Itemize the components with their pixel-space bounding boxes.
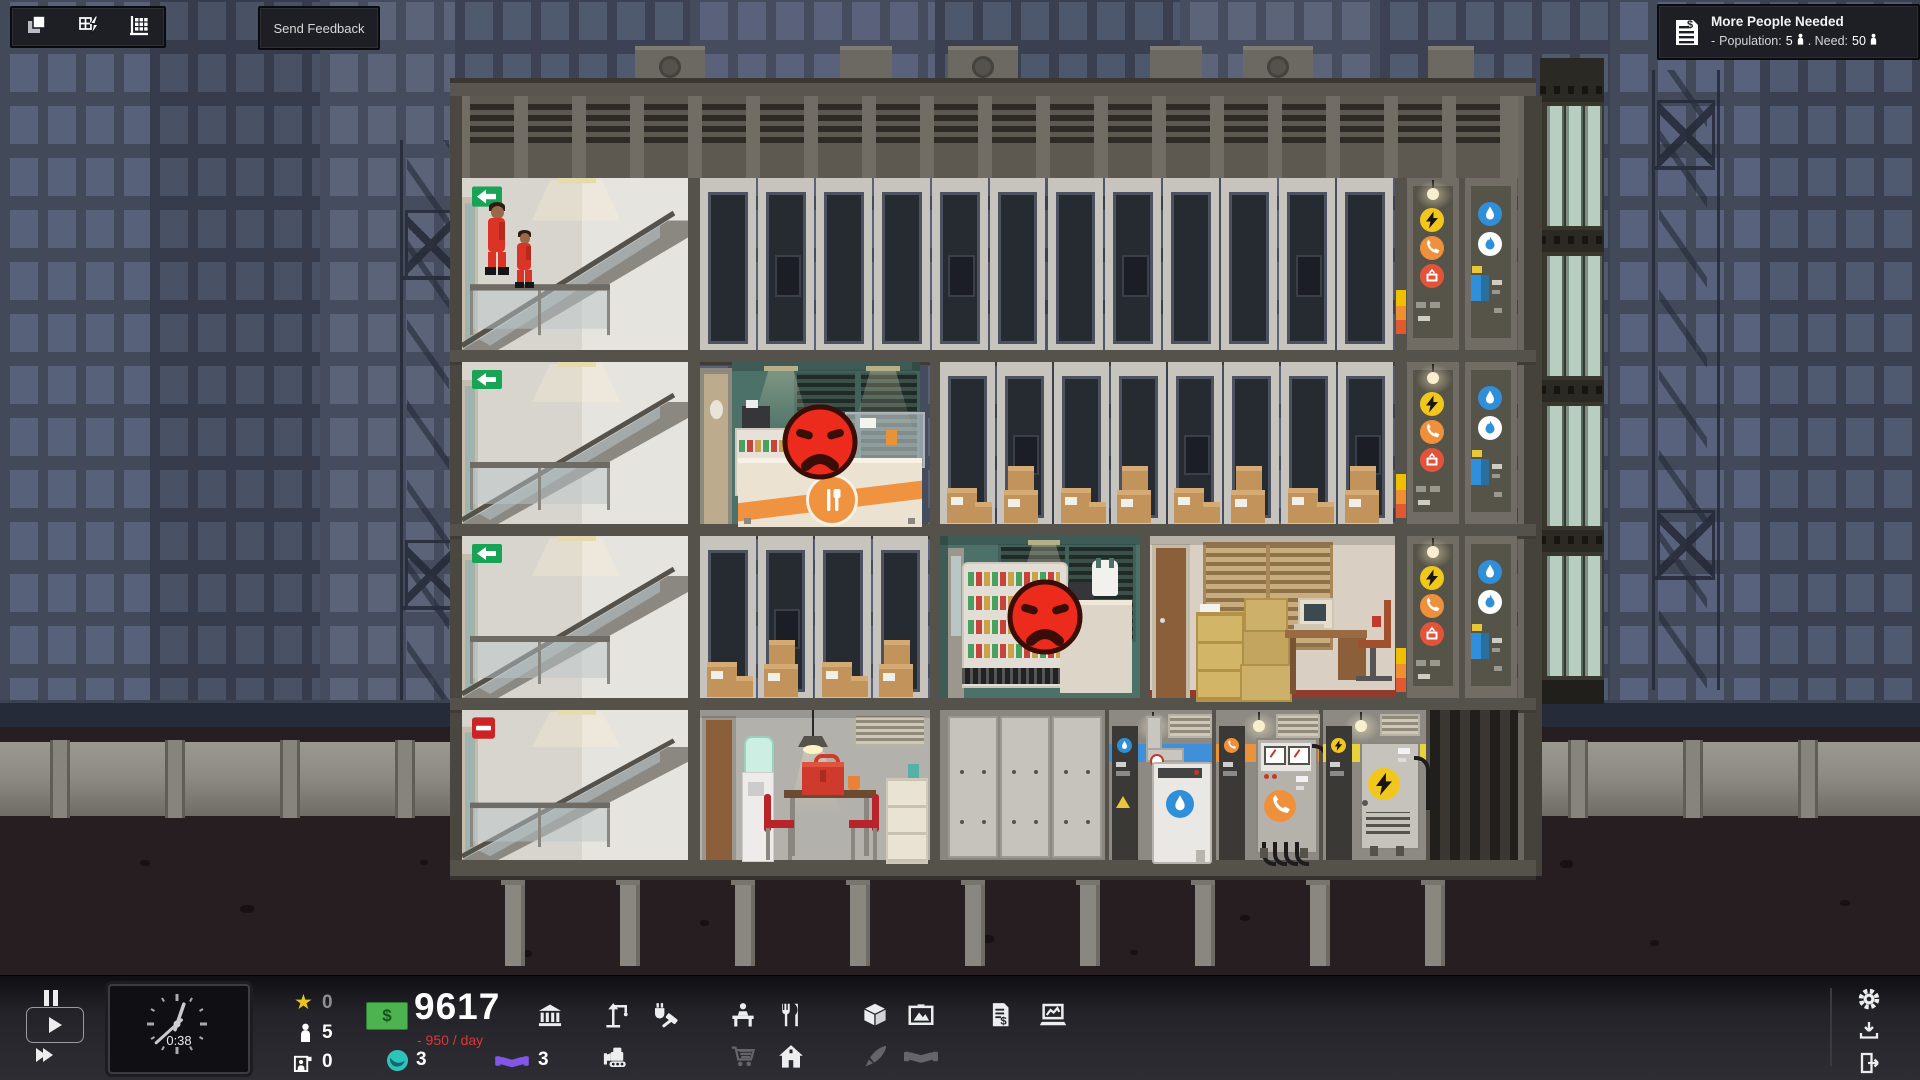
- rock: [420, 860, 428, 865]
- rock: [1130, 950, 1138, 955]
- rock: [1650, 940, 1659, 946]
- fire-escape-ladder: [407, 140, 449, 720]
- storage-box: [947, 488, 977, 523]
- foundation-pillar: [505, 885, 525, 966]
- storage-box: [1350, 466, 1376, 493]
- panel-bolt: [960, 820, 964, 824]
- panel-bolt: [982, 770, 986, 774]
- parapet-lip: [450, 78, 1536, 83]
- ceiling-shadow: [700, 710, 930, 718]
- overlay-toolbar: [10, 6, 166, 48]
- tower-glass-section: [1540, 402, 1604, 530]
- file-cabinet: [1196, 612, 1244, 702]
- roof-vent-column: [1166, 96, 1210, 178]
- contracts-button[interactable]: $: [978, 995, 1024, 1035]
- door-handle: [1160, 618, 1165, 623]
- pencil-cup: [908, 764, 919, 778]
- storage-box: [1122, 466, 1148, 493]
- pipe-coupling: [1798, 740, 1818, 818]
- tower-window-strip: [1566, 406, 1583, 526]
- bulldozer-button[interactable]: [594, 1037, 640, 1077]
- tower-window-strip: [1547, 256, 1564, 376]
- background-building: [150, 0, 320, 730]
- shelf-products: [739, 440, 785, 452]
- panel-bolt: [1034, 820, 1038, 824]
- roof-vent-column: [818, 96, 862, 178]
- send-feedback-button[interactable]: Send Feedback: [258, 6, 380, 50]
- unit-door-opening: [1345, 192, 1385, 344]
- tower-roof: [1540, 58, 1604, 80]
- stripe-marker: [1396, 490, 1406, 504]
- foundation-pillar: [620, 885, 640, 966]
- tower-window-strip: [1566, 256, 1583, 376]
- utility-mini-icon: [1224, 738, 1239, 753]
- ceiling-shadow: [1150, 536, 1395, 545]
- lamp-bulb: [1427, 372, 1439, 384]
- influence-icon: [386, 1049, 409, 1077]
- foundation-pillar: [965, 885, 985, 966]
- meter-box: [1471, 459, 1481, 485]
- deli-door-window: [710, 400, 723, 419]
- bank-icon[interactable]: [536, 1001, 564, 1034]
- label: [1492, 280, 1502, 285]
- storage-box: [1174, 488, 1204, 523]
- phone-icon: [1420, 236, 1444, 260]
- rock: [1560, 860, 1573, 868]
- label: [1398, 748, 1410, 754]
- tower-glass-section: [1540, 552, 1604, 680]
- building-left-wall: [450, 96, 462, 876]
- person-icon: [1797, 33, 1804, 48]
- person-icon: [1870, 33, 1877, 48]
- roof-vent-column: [1108, 96, 1152, 178]
- worker-boot: [525, 282, 534, 288]
- tower-window-strip: [1585, 256, 1602, 376]
- worker-arm: [526, 246, 531, 260]
- electric-bolt-icon: [1420, 392, 1444, 416]
- storage-box: [1288, 488, 1318, 523]
- label: [1418, 500, 1430, 505]
- chair-leg: [788, 828, 792, 860]
- riser-handle: [1494, 666, 1502, 671]
- storage-box: [975, 502, 992, 523]
- storage-box: [769, 640, 795, 667]
- stripe-marker: [1396, 664, 1406, 678]
- chair-post: [1370, 648, 1376, 676]
- game-clock: 0:38: [108, 984, 250, 1074]
- favors-handshake-icon: [494, 1051, 530, 1077]
- breaker-vents: [1366, 812, 1410, 834]
- roof-vent-column: [1224, 96, 1268, 178]
- shopping-cart-button[interactable]: [720, 1037, 766, 1077]
- stripe-marker: [1396, 648, 1406, 664]
- roof-vent-column: [992, 96, 1036, 178]
- panel-bolt: [1086, 820, 1090, 824]
- money-icon: $: [366, 1002, 408, 1030]
- roof-vent-column: [1398, 96, 1442, 178]
- machine-foot: [1260, 848, 1268, 858]
- utilities-tools-button[interactable]: [642, 995, 688, 1035]
- lamp-bulb: [1427, 546, 1439, 558]
- storage-box: [884, 640, 910, 667]
- empty-unit[interactable]: [700, 178, 756, 350]
- storage-box: [1231, 490, 1265, 523]
- cable-tv-icon: [1420, 622, 1444, 646]
- panel-bolt: [1086, 770, 1090, 774]
- food-service-button[interactable]: [768, 995, 814, 1035]
- unit-door-opening: [1171, 192, 1211, 344]
- roof-vent-column: [644, 96, 688, 178]
- unit-under-construction[interactable]: [1168, 362, 1223, 524]
- cable: [1414, 756, 1430, 810]
- street-right: [1518, 700, 1920, 730]
- cash-register: [742, 406, 770, 428]
- meter-box: [1481, 275, 1489, 301]
- roof-vent-column: [934, 96, 978, 178]
- ac-grille: [854, 714, 926, 746]
- label: [1492, 638, 1502, 643]
- empty-unit[interactable]: [874, 178, 930, 350]
- riser-handle: [1430, 302, 1440, 308]
- roof-vent-column: [528, 96, 572, 178]
- hud-divider: [1830, 988, 1832, 1066]
- staff-icon: [293, 1053, 312, 1077]
- empty-unit[interactable]: [1279, 178, 1335, 350]
- tower-window-strip: [1547, 106, 1564, 226]
- interior-wall: [1140, 536, 1150, 698]
- counter-leg: [744, 518, 751, 524]
- empty-unit[interactable]: [1221, 178, 1277, 350]
- roof-vent-column: [1050, 96, 1094, 178]
- water-bottle: [744, 736, 774, 776]
- plastic-bag: [1092, 560, 1118, 596]
- ceiling-shadow: [732, 362, 920, 371]
- chair-seat: [849, 820, 879, 828]
- storage-box: [822, 662, 852, 697]
- electric-bolt-icon: [1420, 566, 1444, 590]
- storage-box: [1089, 502, 1106, 523]
- unit-under-construction[interactable]: [873, 536, 929, 698]
- empty-unit[interactable]: [758, 178, 814, 350]
- counter-leg: [908, 518, 915, 524]
- drink-cup: [886, 430, 897, 445]
- papers: [1200, 604, 1220, 612]
- unit-vent: [1122, 255, 1148, 297]
- stripe-marker: [1396, 678, 1406, 692]
- riser-handle: [1494, 308, 1502, 313]
- break-cabinet: [886, 778, 928, 864]
- storage-box: [1061, 488, 1091, 523]
- cable-tv-icon: [1420, 448, 1444, 472]
- pipe-coupling: [395, 740, 415, 818]
- rock: [1840, 900, 1850, 906]
- storage-box: [1317, 502, 1334, 523]
- grid-power-icon[interactable]: [76, 13, 100, 42]
- stripe-marker: [1396, 320, 1406, 334]
- unit-vent: [1184, 435, 1210, 475]
- utility-mini-icon: [1331, 738, 1346, 753]
- stairwell-floor-1[interactable]: [462, 710, 688, 860]
- office-desk-button[interactable]: [720, 995, 766, 1035]
- stripe-marker: [1396, 474, 1406, 490]
- unit-under-construction[interactable]: [1338, 362, 1393, 524]
- cooler-label: [748, 782, 764, 796]
- lamp-cord: [1432, 364, 1434, 372]
- ceiling-shadow: [940, 536, 1140, 545]
- svg-text:$: $: [1687, 19, 1693, 31]
- storage-box: [851, 676, 868, 697]
- reports-button[interactable]: [1030, 995, 1076, 1035]
- tower-glass-section: [1540, 252, 1604, 380]
- tower-window-strip: [1566, 106, 1583, 226]
- machine-panel: [1052, 716, 1102, 858]
- building-right-wall: [1518, 96, 1542, 876]
- label: [1492, 474, 1500, 478]
- roof-vent-column: [702, 96, 746, 178]
- panel-bolt: [1034, 770, 1038, 774]
- star-rating-value: 0: [322, 992, 333, 1014]
- tower-band: [1540, 530, 1604, 552]
- unhappy-tenant-indicator[interactable]: [780, 402, 860, 482]
- unit-under-construction[interactable]: [997, 362, 1052, 524]
- unit-door-opening: [708, 192, 748, 344]
- label: [1492, 464, 1502, 469]
- unit-door-opening: [824, 192, 864, 344]
- empty-unit[interactable]: [1048, 178, 1104, 350]
- fire-escape-ladder: [1659, 70, 1707, 690]
- electric-bolt-icon: [1420, 208, 1444, 232]
- label: [1296, 786, 1304, 790]
- street-left: [0, 700, 462, 730]
- roof-vent-column: [1340, 96, 1384, 178]
- riser-handle: [1416, 660, 1426, 666]
- tower-window-strip: [1585, 106, 1602, 226]
- game-viewport: Send Feedback $ More People Needed - Pop…: [0, 0, 1920, 1080]
- water-drop-icon: [1478, 202, 1502, 226]
- deli-door: [704, 374, 728, 524]
- unit-under-construction[interactable]: [1224, 362, 1279, 524]
- label: [1418, 674, 1430, 679]
- storage-box: [1004, 490, 1038, 523]
- stripe-marker: [1396, 290, 1406, 306]
- svg-text:$: $: [1000, 1015, 1007, 1027]
- foundation-pillar: [1310, 885, 1330, 966]
- foundation-pillar: [1425, 885, 1445, 966]
- tower-glass-section: [1540, 102, 1604, 230]
- worker-boot: [498, 267, 509, 275]
- fast-forward-button[interactable]: [36, 1048, 53, 1067]
- send-feedback-label: Send Feedback: [273, 21, 364, 36]
- staff-value: 0: [322, 1051, 333, 1073]
- construction-crane-button[interactable]: [594, 995, 640, 1035]
- empty-unit[interactable]: [1337, 178, 1393, 350]
- interior-wall: [930, 362, 940, 524]
- storage-box: [1117, 490, 1151, 523]
- interior-wall: [930, 710, 940, 860]
- notification-title: More People Needed: [1711, 14, 1844, 29]
- chair-seat: [764, 820, 794, 828]
- money-balance: 9617: [414, 986, 500, 1028]
- pipe-coupling: [50, 740, 70, 818]
- lamp-bulb: [803, 745, 823, 754]
- unit-under-construction[interactable]: [1281, 362, 1336, 524]
- artwork-button[interactable]: [898, 995, 944, 1035]
- empty-unit[interactable]: [1163, 178, 1219, 350]
- keyboard: [1294, 624, 1324, 630]
- notification-detail: - Population: 5 . Need: 50: [1711, 33, 1877, 48]
- power-bolt-logo: [1368, 768, 1400, 800]
- unit-under-construction[interactable]: [1111, 362, 1166, 524]
- drain-pipe: [1196, 850, 1205, 862]
- warning-triangle-icon: [1116, 796, 1130, 808]
- chair-leg: [873, 828, 877, 860]
- hud-bar: 0:38 ★ 0 5 0 $ 9617 - 950 / day 3 3 $: [0, 975, 1920, 1080]
- play-icon: [49, 1017, 62, 1033]
- rooftop-fan-icon: [659, 56, 681, 78]
- meter-box: [1471, 633, 1481, 659]
- empty-unit[interactable]: [990, 178, 1046, 350]
- chair-seat: [1358, 640, 1390, 648]
- office-door: [1156, 548, 1186, 698]
- rock: [700, 920, 709, 926]
- mug: [848, 776, 860, 790]
- unit-under-construction[interactable]: [940, 362, 995, 524]
- storage-box: [1236, 466, 1262, 493]
- unhappy-tenant-indicator[interactable]: [1005, 577, 1085, 657]
- riser-handle: [1416, 302, 1426, 308]
- ac-grille: [1380, 714, 1420, 736]
- unit-vent: [775, 255, 801, 297]
- unit-under-construction[interactable]: [1054, 362, 1109, 524]
- tag: [1472, 266, 1482, 273]
- roof-vent-column: [470, 96, 514, 178]
- unit-vent: [1296, 255, 1322, 297]
- building-chart-icon[interactable]: [127, 13, 151, 42]
- roof-vent-column: [586, 96, 630, 178]
- stripe-marker: [1396, 504, 1406, 518]
- worker-boot: [515, 282, 524, 288]
- label: [1398, 758, 1406, 762]
- unit-under-construction[interactable]: [758, 536, 814, 698]
- machine-panel: [948, 716, 998, 858]
- unit-under-construction[interactable]: [815, 536, 871, 698]
- unit-vent: [948, 255, 974, 297]
- computer-screen: [1304, 604, 1326, 621]
- office-desk: [1285, 630, 1367, 638]
- chair-leg: [766, 828, 770, 860]
- unit-door-opening: [1056, 192, 1096, 344]
- ac-grille: [1168, 714, 1212, 738]
- worker: [484, 202, 510, 278]
- foundation-pillar: [1195, 885, 1215, 966]
- tower-band: [1540, 230, 1604, 252]
- rock: [240, 905, 254, 913]
- machine-foot: [1300, 848, 1308, 858]
- water-drop-icon: [1478, 560, 1502, 584]
- meter-box: [1481, 633, 1489, 659]
- gas-flame-icon: [1478, 590, 1502, 614]
- panel-bolt: [1064, 770, 1068, 774]
- goods-box-button[interactable]: [852, 995, 898, 1035]
- interior-wall: [930, 536, 940, 698]
- tower-window-strip: [1585, 556, 1602, 676]
- cashflow-value: - 950 / day: [417, 1032, 483, 1048]
- lamp-cord: [1432, 538, 1434, 546]
- napkins: [860, 418, 876, 428]
- machine-foot: [1370, 846, 1378, 856]
- utility-mini-icon: [1117, 738, 1132, 753]
- tower-window-strip: [1547, 406, 1564, 526]
- riser-handle: [1416, 486, 1426, 492]
- influence-value: 3: [416, 1049, 427, 1071]
- gas-flame-icon: [1478, 232, 1502, 256]
- cardboard-box: [1244, 598, 1288, 632]
- riser-handle: [1494, 492, 1502, 497]
- empty-unit[interactable]: [932, 178, 988, 350]
- roof-vent-column: [760, 96, 804, 178]
- chair-base: [1356, 676, 1392, 681]
- panel-bolt: [1012, 770, 1016, 774]
- lamp-bulb: [1427, 188, 1439, 200]
- storage-box: [1345, 490, 1379, 523]
- indicator-light: [1272, 774, 1277, 779]
- machine-foot: [1396, 846, 1404, 856]
- invoice-icon: $: [1673, 18, 1700, 52]
- background-building: [0, 0, 150, 730]
- pipe-coupling: [280, 740, 300, 818]
- cardboard-box: [1240, 664, 1292, 702]
- foundation-pillar: [735, 885, 755, 966]
- tag: [1472, 450, 1482, 457]
- foundation-pillar: [1080, 885, 1100, 966]
- storage-box: [707, 662, 737, 697]
- label: [1330, 762, 1340, 767]
- stairwell-floor-3[interactable]: [462, 362, 688, 524]
- panel-bolt: [1064, 820, 1068, 824]
- stripe-marker: [1396, 306, 1406, 320]
- paint-brush-button[interactable]: [852, 1037, 898, 1077]
- favors-value: 3: [538, 1049, 549, 1071]
- worker-arm: [499, 222, 505, 240]
- stairwell-floor-2[interactable]: [462, 536, 688, 698]
- layers-icon[interactable]: [25, 13, 49, 42]
- unit-door-opening: [998, 192, 1038, 344]
- notification-more-people-needed[interactable]: $ More People Needed - Population: 5 . N…: [1657, 4, 1920, 60]
- deals-handshake-button[interactable]: [898, 1037, 944, 1077]
- cable-tv-icon: [1420, 264, 1444, 288]
- play-button[interactable]: [26, 1007, 84, 1043]
- roof-vent-column: [1456, 96, 1500, 178]
- unit-under-construction[interactable]: [700, 536, 756, 698]
- shelf-vent: [962, 668, 1064, 684]
- storage-box: [736, 676, 753, 697]
- background-building: [1760, 0, 1920, 730]
- storage-box: [879, 664, 913, 697]
- rock: [140, 860, 150, 866]
- empty-unit[interactable]: [1105, 178, 1161, 350]
- star-icon: ★: [294, 990, 313, 1015]
- riser-handle: [1430, 486, 1440, 492]
- exit-button[interactable]: [1846, 1043, 1892, 1080]
- residential-home-button[interactable]: [768, 1037, 814, 1077]
- panel-bolt: [960, 770, 964, 774]
- roof-vent-column: [1282, 96, 1326, 178]
- empty-unit[interactable]: [816, 178, 872, 350]
- worker-boot: [485, 267, 496, 275]
- pipe-coupling: [1568, 740, 1588, 818]
- store-door-glass: [951, 556, 961, 636]
- tower-window-strip: [1566, 556, 1583, 676]
